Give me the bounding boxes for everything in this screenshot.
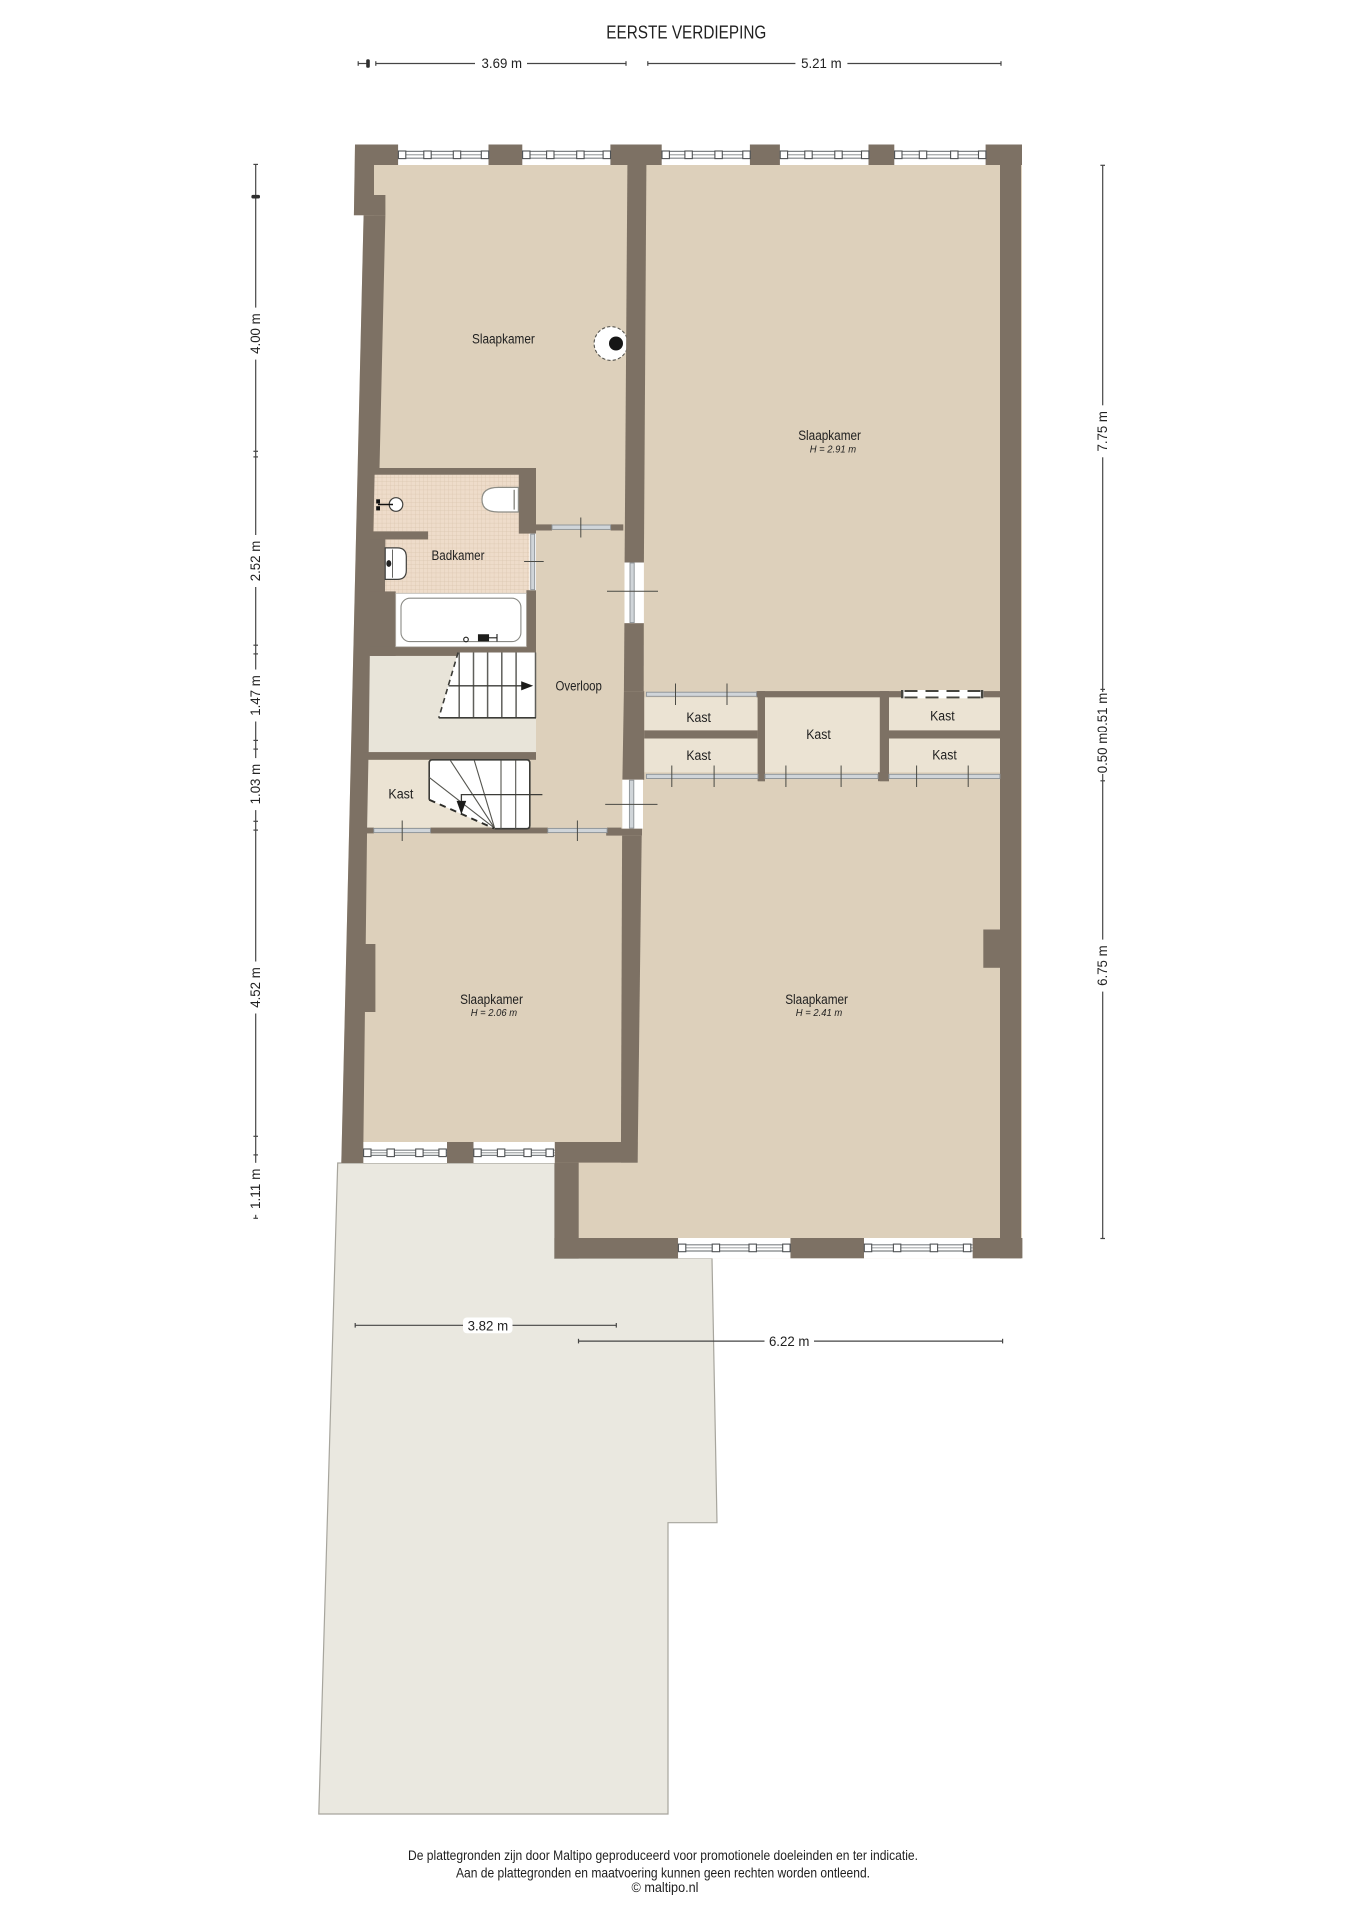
svg-text:1.11 m: 1.11 m xyxy=(248,1169,263,1210)
svg-text:0.51 m: 0.51 m xyxy=(1095,693,1110,734)
svg-text:De plattegronden zijn door Mal: De plattegronden zijn door Maltipo gepro… xyxy=(408,1847,918,1863)
svg-text:Aan de plattegronden en maatvo: Aan de plattegronden en maatvoering kunn… xyxy=(456,1864,870,1880)
svg-text:0.50 m: 0.50 m xyxy=(1095,733,1110,774)
svg-text:5.21 m: 5.21 m xyxy=(801,56,842,71)
svg-text:Slaapkamer: Slaapkamer xyxy=(785,992,848,1008)
svg-text:EERSTE VERDIEPING: EERSTE VERDIEPING xyxy=(606,22,766,43)
svg-text:Kast: Kast xyxy=(932,748,957,764)
svg-text:4.52 m: 4.52 m xyxy=(248,967,263,1008)
svg-text:H = 2.41 m: H = 2.41 m xyxy=(796,1007,843,1019)
svg-text:Kast: Kast xyxy=(388,787,413,803)
svg-text:Kast: Kast xyxy=(686,710,711,726)
svg-text:4.00 m: 4.00 m xyxy=(248,313,263,354)
svg-text:Slaapkamer: Slaapkamer xyxy=(798,428,861,444)
svg-text:Slaapkamer: Slaapkamer xyxy=(472,332,535,348)
svg-text:2.52 m: 2.52 m xyxy=(248,541,263,582)
svg-text:Kast: Kast xyxy=(930,708,955,724)
svg-text:H = 2.91 m: H = 2.91 m xyxy=(810,444,857,456)
svg-text:6.22 m: 6.22 m xyxy=(769,1334,810,1349)
svg-text:Overloop: Overloop xyxy=(556,678,602,694)
svg-text:Badkamer: Badkamer xyxy=(432,548,485,564)
svg-text:3.69 m: 3.69 m xyxy=(482,56,523,71)
svg-text:Kast: Kast xyxy=(806,727,831,743)
svg-text:© maltipo.nl: © maltipo.nl xyxy=(632,1879,699,1895)
svg-text:1.03 m: 1.03 m xyxy=(248,764,263,805)
svg-text:1.47 m: 1.47 m xyxy=(248,675,263,716)
svg-text:3.82 m: 3.82 m xyxy=(468,1318,509,1333)
svg-text:6.75 m: 6.75 m xyxy=(1095,945,1110,986)
svg-text:Slaapkamer: Slaapkamer xyxy=(460,992,523,1008)
svg-text:7.75 m: 7.75 m xyxy=(1095,411,1110,452)
svg-text:H = 2.06 m: H = 2.06 m xyxy=(471,1007,518,1019)
svg-text:Kast: Kast xyxy=(686,748,711,764)
